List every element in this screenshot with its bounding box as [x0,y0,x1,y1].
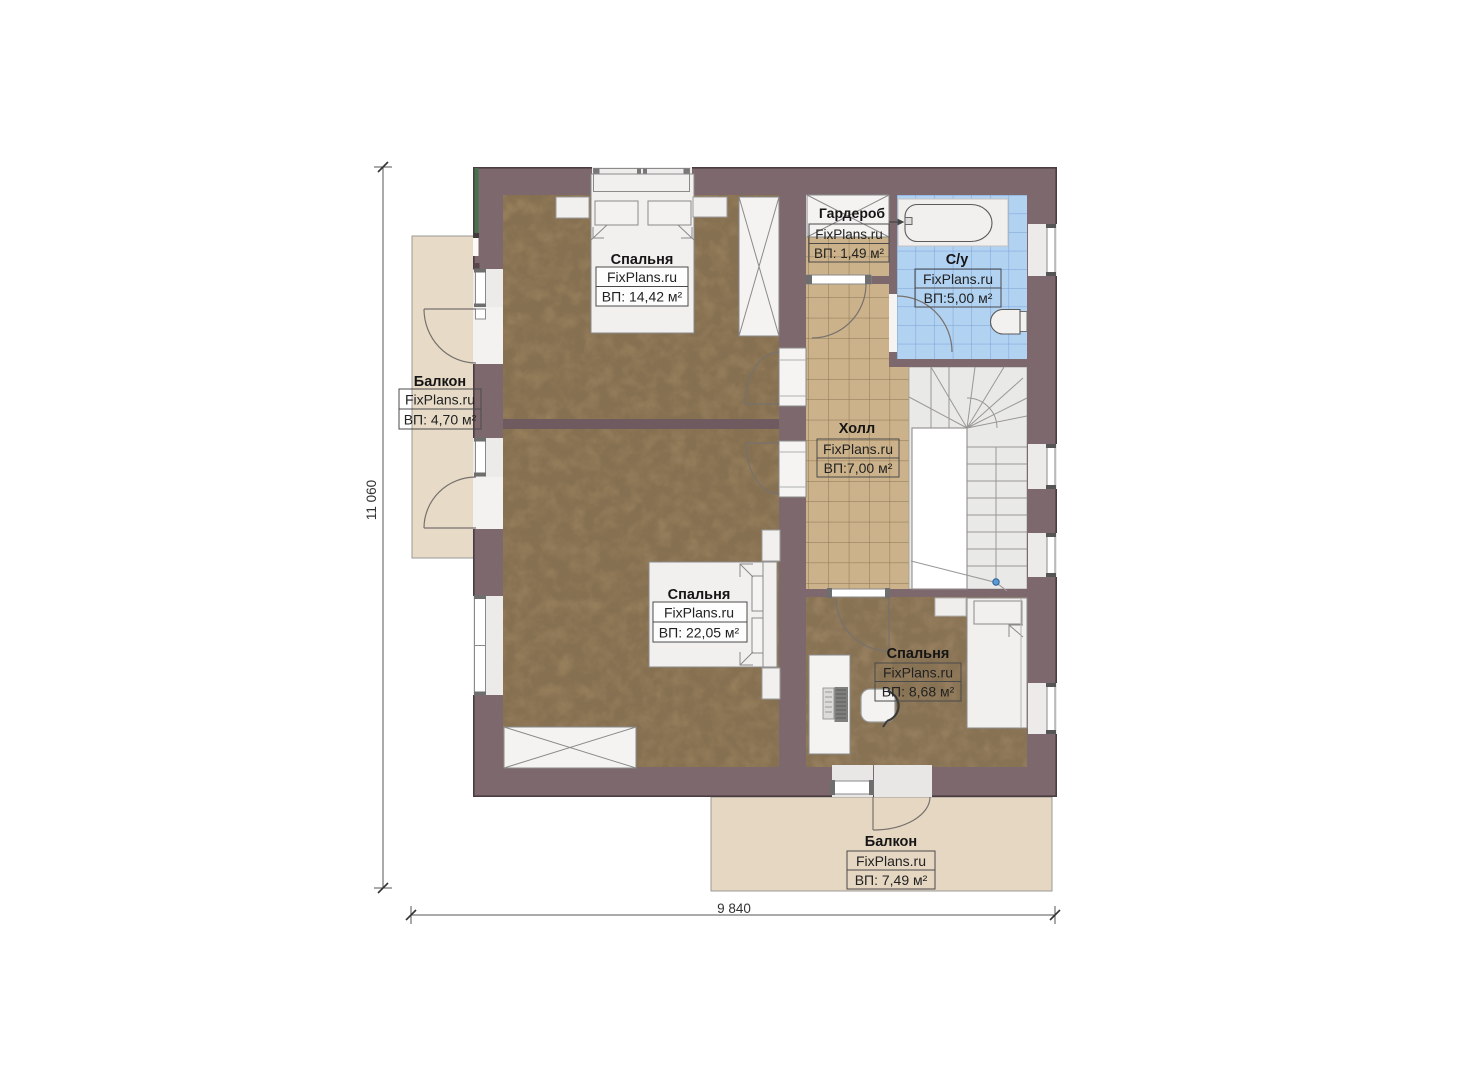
svg-text:FixPlans.ru: FixPlans.ru [664,605,734,621]
svg-text:FixPlans.ru: FixPlans.ru [923,271,993,287]
svg-text:9 840: 9 840 [717,901,751,916]
svg-text:FixPlans.ru: FixPlans.ru [883,665,953,681]
svg-text:ВП: 7,49 м²: ВП: 7,49 м² [855,872,928,888]
svg-text:ВП: 14,42 м²: ВП: 14,42 м² [602,289,683,305]
svg-text:Спальня: Спальня [668,587,731,603]
svg-text:FixPlans.ru: FixPlans.ru [856,853,926,869]
svg-text:FixPlans.ru: FixPlans.ru [405,392,475,408]
svg-text:FixPlans.ru: FixPlans.ru [815,227,883,242]
svg-text:Балкон: Балкон [414,374,466,390]
svg-text:Спальня: Спальня [887,646,950,662]
svg-text:11 060: 11 060 [364,480,379,520]
svg-text:ВП: 1,49 м²: ВП: 1,49 м² [814,246,885,261]
svg-text:ВП: 4,70 м²: ВП: 4,70 м² [404,412,477,428]
svg-text:ВП:7,00 м²: ВП:7,00 м² [824,460,893,476]
svg-text:Гардероб: Гардероб [819,205,886,221]
svg-text:Спальня: Спальня [611,252,674,268]
svg-text:FixPlans.ru: FixPlans.ru [823,441,893,457]
svg-text:FixPlans.ru: FixPlans.ru [607,269,677,285]
svg-text:С/у: С/у [946,252,969,268]
svg-text:ВП:5,00 м²: ВП:5,00 м² [924,290,993,306]
svg-text:ВП: 8,68 м²: ВП: 8,68 м² [882,684,955,700]
svg-text:Балкон: Балкон [865,834,917,850]
svg-text:ВП: 22,05 м²: ВП: 22,05 м² [659,625,740,641]
svg-text:Холл: Холл [839,421,875,437]
